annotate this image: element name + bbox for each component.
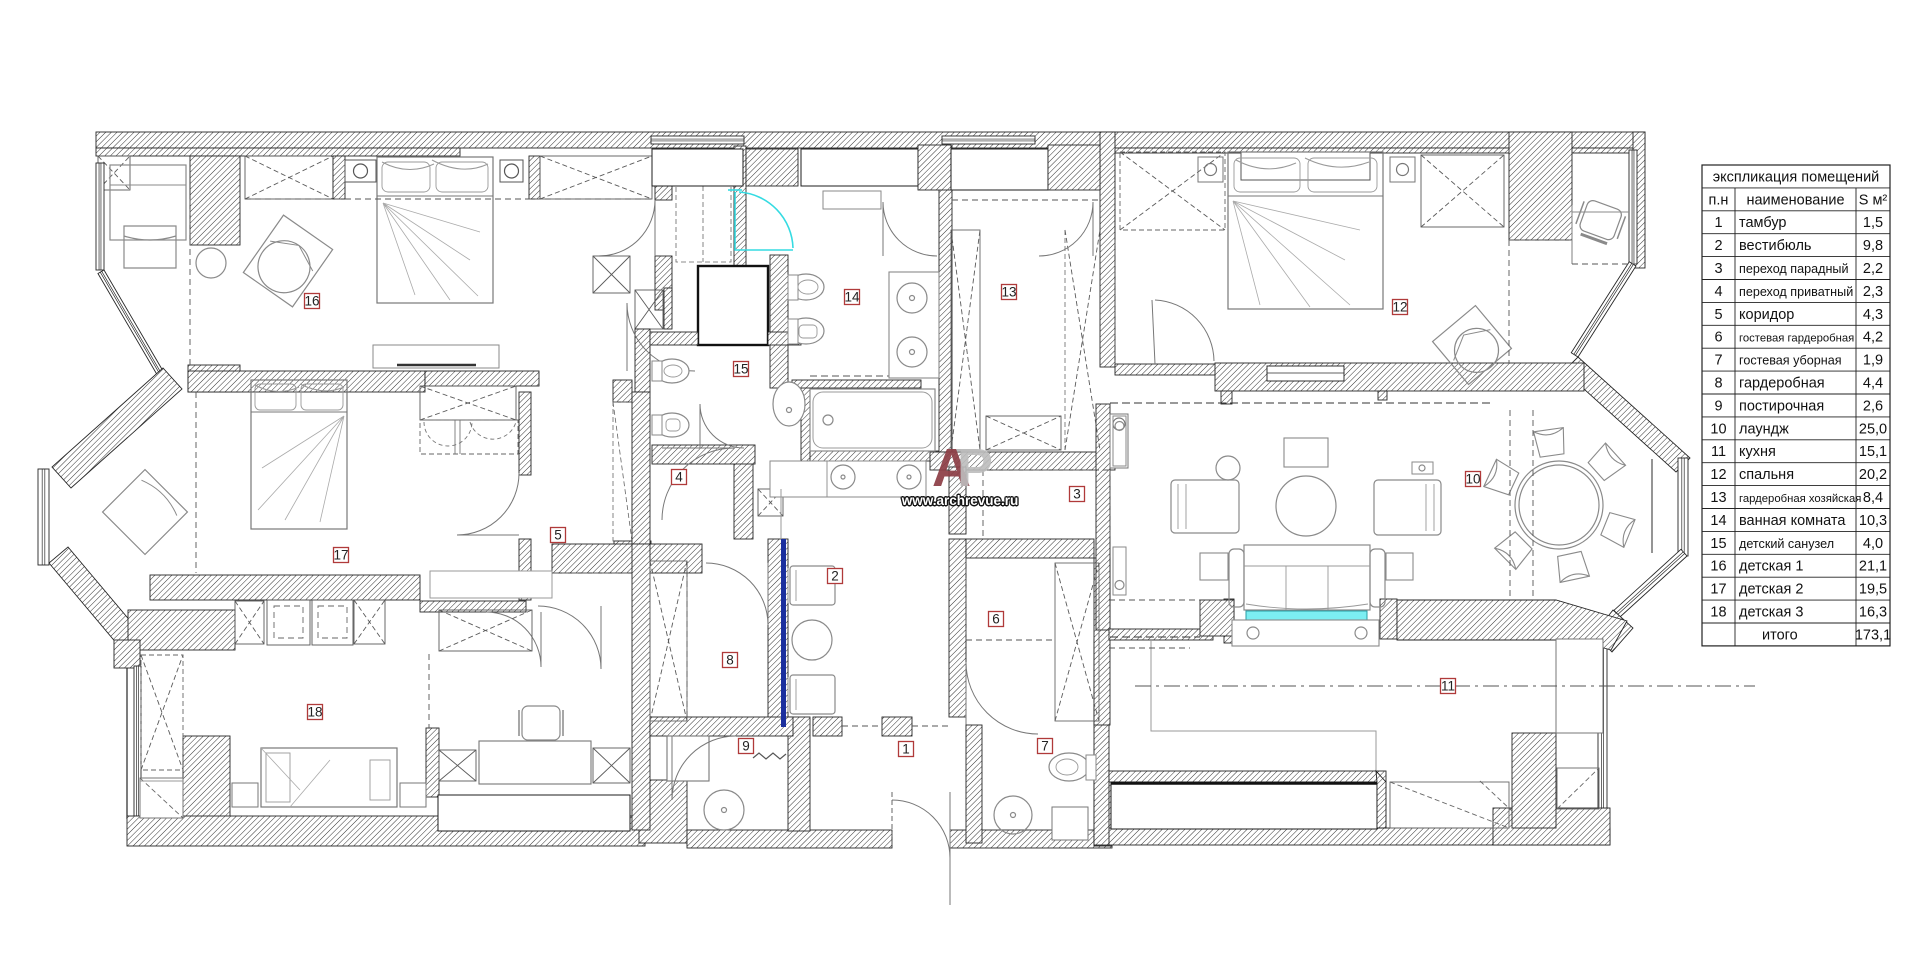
svg-text:вестибюль: вестибюль bbox=[1739, 238, 1811, 254]
svg-text:www.archrevue.ru: www.archrevue.ru bbox=[901, 493, 1019, 508]
svg-text:детская 1: детская 1 bbox=[1739, 559, 1803, 575]
svg-text:4,3: 4,3 bbox=[1863, 307, 1883, 323]
svg-text:7: 7 bbox=[1714, 353, 1722, 369]
svg-text:детский санузел: детский санузел bbox=[1739, 537, 1834, 551]
svg-text:17: 17 bbox=[1710, 582, 1726, 598]
svg-text:9,8: 9,8 bbox=[1863, 238, 1883, 254]
svg-text:13: 13 bbox=[1710, 490, 1726, 506]
svg-text:гардеробная хозяйская: гардеробная хозяйская bbox=[1739, 493, 1861, 505]
svg-text:S м²: S м² bbox=[1859, 192, 1888, 208]
svg-text:18: 18 bbox=[307, 705, 322, 720]
svg-text:2,2: 2,2 bbox=[1863, 261, 1883, 277]
svg-text:Р: Р bbox=[957, 438, 993, 498]
svg-text:12: 12 bbox=[1392, 300, 1407, 315]
svg-text:1: 1 bbox=[902, 742, 910, 757]
svg-text:10,3: 10,3 bbox=[1859, 513, 1887, 529]
svg-text:14: 14 bbox=[1710, 513, 1726, 529]
svg-text:4,2: 4,2 bbox=[1863, 330, 1883, 346]
svg-text:постирочная: постирочная bbox=[1739, 398, 1824, 414]
svg-text:спальня: спальня bbox=[1739, 467, 1794, 483]
svg-text:п.н: п.н bbox=[1709, 192, 1729, 208]
svg-text:коридор: коридор bbox=[1739, 307, 1794, 323]
svg-text:4: 4 bbox=[1714, 284, 1722, 300]
svg-text:173,1: 173,1 bbox=[1855, 627, 1891, 643]
svg-text:4,4: 4,4 bbox=[1863, 376, 1883, 392]
svg-text:8: 8 bbox=[726, 653, 734, 668]
svg-text:20,2: 20,2 bbox=[1859, 467, 1887, 483]
svg-text:17: 17 bbox=[333, 548, 348, 563]
svg-text:10: 10 bbox=[1710, 421, 1726, 437]
svg-text:детская 3: детская 3 bbox=[1739, 605, 1803, 621]
svg-text:10: 10 bbox=[1465, 472, 1480, 487]
svg-text:4: 4 bbox=[675, 470, 683, 485]
svg-text:3: 3 bbox=[1073, 487, 1081, 502]
svg-text:2: 2 bbox=[831, 569, 839, 584]
svg-text:кухня: кухня bbox=[1739, 444, 1776, 460]
svg-text:9: 9 bbox=[1714, 398, 1722, 414]
svg-text:6: 6 bbox=[992, 612, 1000, 627]
svg-text:гостевая гардеробная: гостевая гардеробная bbox=[1739, 333, 1854, 345]
svg-text:гардеробная: гардеробная bbox=[1739, 376, 1825, 392]
svg-text:лаундж: лаундж bbox=[1739, 421, 1789, 437]
svg-text:12: 12 bbox=[1710, 467, 1726, 483]
svg-text:15: 15 bbox=[1710, 536, 1726, 552]
svg-text:8: 8 bbox=[1714, 376, 1722, 392]
svg-text:15: 15 bbox=[733, 362, 748, 377]
svg-text:наименование: наименование bbox=[1746, 192, 1844, 208]
svg-text:1,9: 1,9 bbox=[1863, 353, 1883, 369]
svg-text:19,5: 19,5 bbox=[1859, 582, 1887, 598]
svg-text:18: 18 bbox=[1710, 605, 1726, 621]
svg-text:переход парадный: переход парадный bbox=[1739, 262, 1849, 276]
svg-text:детская 2: детская 2 bbox=[1739, 582, 1803, 598]
svg-text:5: 5 bbox=[1714, 307, 1722, 323]
svg-text:1,5: 1,5 bbox=[1863, 215, 1883, 231]
svg-text:ванная комната: ванная комната bbox=[1739, 513, 1846, 529]
svg-text:15,1: 15,1 bbox=[1859, 444, 1887, 460]
svg-text:2: 2 bbox=[1714, 238, 1722, 254]
svg-text:25,0: 25,0 bbox=[1859, 421, 1887, 437]
svg-text:переход приватный: переход приватный bbox=[1739, 285, 1853, 299]
svg-text:3: 3 bbox=[1714, 261, 1722, 277]
svg-text:1: 1 bbox=[1714, 215, 1722, 231]
svg-text:4,0: 4,0 bbox=[1863, 536, 1883, 552]
svg-text:14: 14 bbox=[844, 290, 860, 305]
svg-text:тамбур: тамбур bbox=[1739, 215, 1787, 231]
svg-text:2,6: 2,6 bbox=[1863, 398, 1883, 414]
svg-text:6: 6 bbox=[1714, 330, 1722, 346]
svg-text:8,4: 8,4 bbox=[1863, 490, 1883, 506]
svg-text:16,3: 16,3 bbox=[1859, 605, 1887, 621]
svg-text:21,1: 21,1 bbox=[1859, 559, 1887, 575]
svg-text:11: 11 bbox=[1441, 679, 1455, 694]
svg-text:11: 11 bbox=[1711, 444, 1726, 460]
svg-text:7: 7 bbox=[1041, 739, 1049, 754]
svg-text:16: 16 bbox=[1710, 559, 1726, 575]
svg-text:16: 16 bbox=[304, 294, 319, 309]
svg-text:экспликация помещений: экспликация помещений bbox=[1713, 169, 1880, 185]
svg-text:2,3: 2,3 bbox=[1863, 284, 1883, 300]
svg-text:итого: итого bbox=[1762, 627, 1798, 643]
svg-text:гостевая уборная: гостевая уборная bbox=[1739, 354, 1842, 368]
svg-text:5: 5 bbox=[554, 528, 562, 543]
svg-text:13: 13 bbox=[1001, 285, 1016, 300]
svg-text:9: 9 bbox=[742, 739, 750, 754]
